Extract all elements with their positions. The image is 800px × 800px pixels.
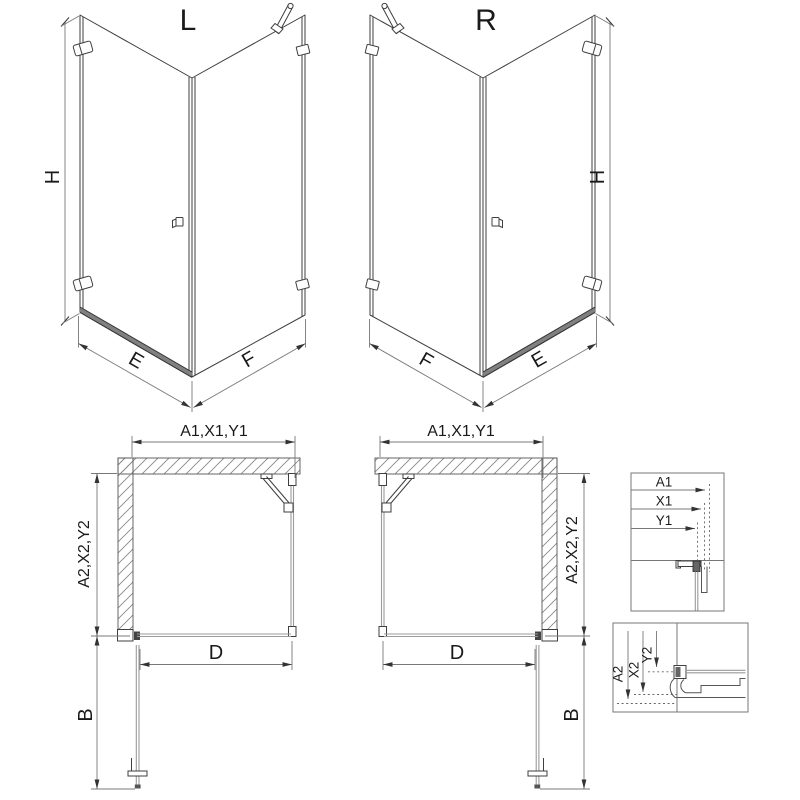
wall-profile-section xyxy=(676,561,707,611)
drawing-canvas: L H E F R H F E xyxy=(0,0,800,800)
door-handle xyxy=(128,771,147,776)
detail-y2-label: Y2 xyxy=(640,647,655,664)
door-closed-position xyxy=(384,634,538,637)
detail-box-depth-dims: A2 X2 Y2 xyxy=(611,623,749,712)
detail-a1-label: A1 xyxy=(656,475,673,490)
door-open-position xyxy=(528,645,547,789)
variant-label-left: L xyxy=(180,4,197,37)
plan-right-depth-dim-label: A2,X2,Y2 xyxy=(564,516,581,584)
door-width-dim-label-right: E xyxy=(528,347,551,373)
door-handle xyxy=(528,771,547,776)
detail-a2-label: A2 xyxy=(611,666,626,683)
height-dim-label-right: H xyxy=(587,170,609,184)
detail-x1-label: X1 xyxy=(656,494,673,509)
door-hinge-block xyxy=(134,632,140,641)
iso-view-left-variant: L H E F xyxy=(42,3,310,412)
plan-right-door-width-dim-label: D xyxy=(450,642,464,664)
plan-left-width-dim-label: A1,X1,Y1 xyxy=(180,423,248,440)
side-wall xyxy=(542,458,557,630)
side-wall xyxy=(118,458,133,630)
floor-profile-section xyxy=(670,666,745,698)
wall-profile-end xyxy=(118,630,134,642)
plan-view-right-variant: A1,X1,Y1 A2,X2,Y2 D B xyxy=(375,423,590,789)
top-wall xyxy=(375,458,557,474)
fixed-panel-glass xyxy=(289,474,297,637)
variant-label-right: R xyxy=(475,4,497,37)
plan-right-door-swing-dim-label: B xyxy=(561,708,583,721)
fixed-width-dim-label-right: F xyxy=(415,348,437,373)
fixed-panel-glass xyxy=(379,474,387,637)
fixed-width-dim-label-left: F xyxy=(238,347,260,372)
plan-left-door-width-dim-label: D xyxy=(209,642,223,664)
plan-left-depth-dim-label: A2,X2,Y2 xyxy=(76,520,93,588)
detail-box-width-dims: A1 X1 Y1 xyxy=(631,473,724,611)
plan-left-door-swing-dim-label: B xyxy=(75,708,97,721)
height-dim-label-left: H xyxy=(42,170,64,184)
iso-view-right-variant: R H F E xyxy=(365,3,614,412)
plan-right-width-dim-label: A1,X1,Y1 xyxy=(427,423,495,440)
door-width-dim-label-left: E xyxy=(125,348,148,374)
door-hinge-block xyxy=(535,632,541,641)
shower-enclosure-technical-drawing: L H E F R H F E xyxy=(0,0,800,800)
plan-view-left-variant: A1,X1,Y1 A2,X2,Y2 D B xyxy=(75,423,300,789)
plan-right-dimensions xyxy=(380,436,590,789)
detail-y1-label: Y1 xyxy=(656,513,673,528)
door-open-position xyxy=(128,645,147,789)
top-wall xyxy=(118,458,300,474)
wall-profile-end xyxy=(542,630,558,642)
door-closed-position xyxy=(137,634,291,637)
